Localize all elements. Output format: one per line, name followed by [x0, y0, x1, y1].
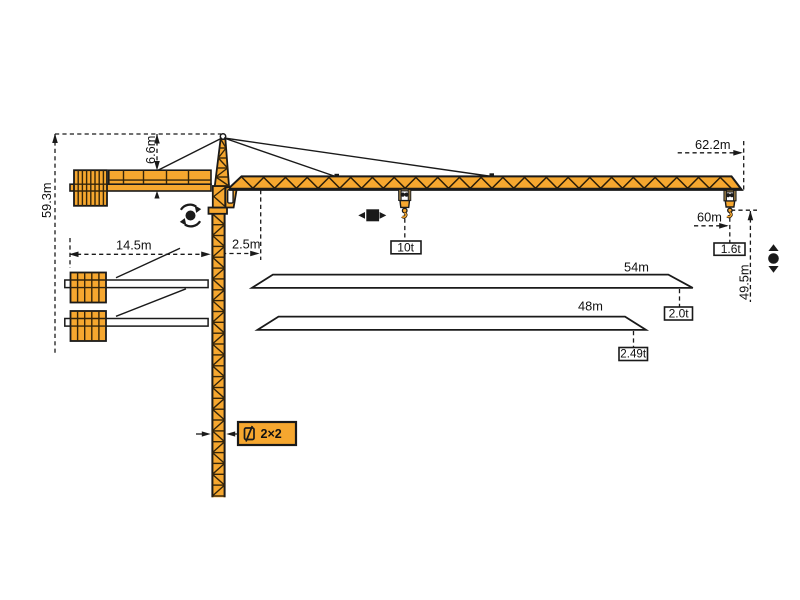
- svg-text:2.0t: 2.0t: [669, 306, 690, 320]
- svg-text:1.6t: 1.6t: [721, 242, 742, 256]
- svg-text:49.5m: 49.5m: [737, 264, 752, 300]
- svg-text:2.49t: 2.49t: [620, 348, 647, 361]
- svg-text:48m: 48m: [578, 299, 603, 314]
- svg-text:10t: 10t: [397, 240, 414, 254]
- svg-text:2×2: 2×2: [261, 427, 282, 441]
- svg-text:6.6m: 6.6m: [143, 136, 158, 164]
- svg-text:2.5m: 2.5m: [232, 237, 260, 252]
- svg-text:14.5m: 14.5m: [116, 238, 152, 253]
- svg-text:54m: 54m: [624, 260, 649, 275]
- svg-text:59.3m: 59.3m: [39, 182, 54, 218]
- svg-text:62.2m: 62.2m: [695, 137, 731, 152]
- svg-text:60m: 60m: [697, 210, 722, 225]
